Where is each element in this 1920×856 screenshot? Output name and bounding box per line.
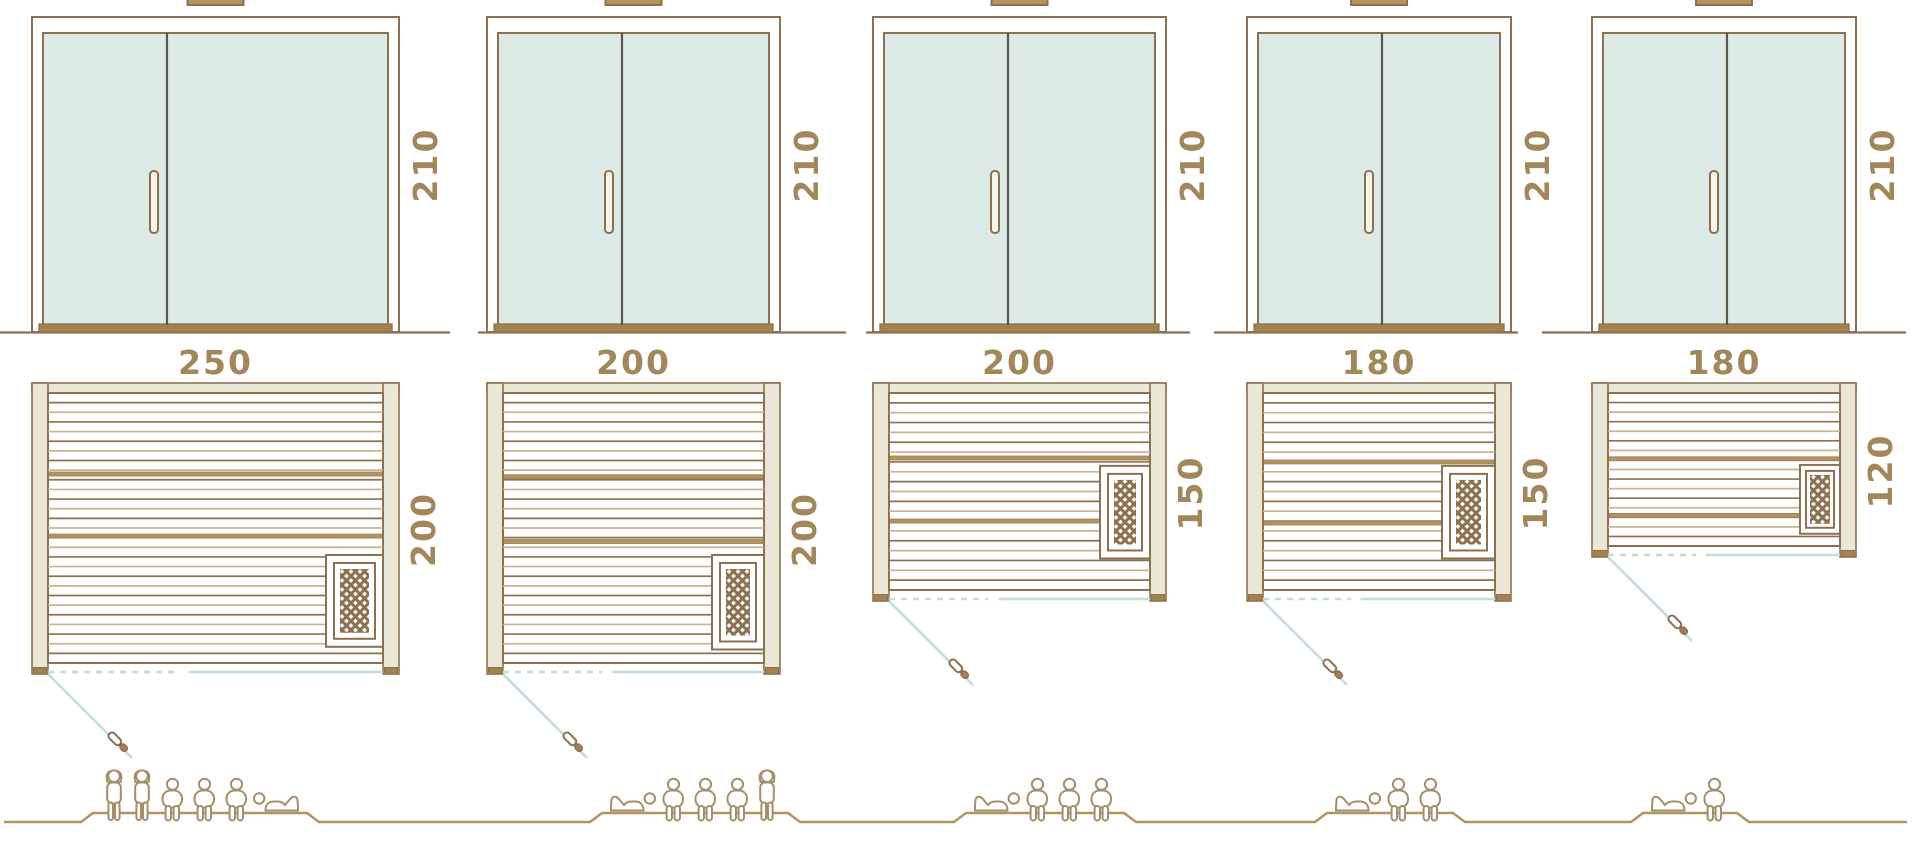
- person-sit-icon: [664, 779, 684, 821]
- person-lie-icon: [1652, 793, 1696, 810]
- heater-stones: [726, 569, 750, 636]
- bench-edge: [1609, 457, 1839, 461]
- plan-right-post-foot: [1842, 551, 1855, 558]
- unit-sauna-250x200: 210250200: [0, 0, 450, 758]
- vent-cap: [606, 0, 662, 5]
- person-sit-icon: [1092, 779, 1112, 821]
- capacity-icons-sauna-180x120: [1652, 779, 1724, 821]
- heater-icon: [1100, 466, 1150, 559]
- plan-depth-label: 200: [404, 492, 443, 567]
- person-sit-icon: [1028, 779, 1048, 821]
- glass-panels: [498, 33, 769, 325]
- plan-back-wall: [32, 383, 399, 393]
- vent-cap: [992, 0, 1048, 5]
- capacity-icons-sauna-200x150: [975, 779, 1111, 821]
- heater-stones: [340, 569, 369, 633]
- door-sill: [39, 324, 392, 332]
- person-lie-icon: [975, 793, 1019, 810]
- door-handle-icon: [150, 171, 158, 233]
- plan-left-post-foot: [1594, 551, 1607, 558]
- unit-sauna-200x150: 210200150: [866, 0, 1212, 685]
- person-sit-icon: [1389, 779, 1409, 821]
- plan-left-post: [1247, 383, 1263, 601]
- person-stand-icon: [760, 770, 775, 820]
- person-sit-icon: [1421, 779, 1441, 821]
- bench-edge: [890, 456, 1149, 460]
- heater-stones: [1810, 475, 1830, 524]
- unit-sauna-180x150: 210180150: [1214, 0, 1557, 685]
- plan-width-label: 250: [178, 343, 253, 382]
- plan-depth-label: 150: [1171, 456, 1210, 531]
- door-handle-marker: [107, 731, 129, 753]
- heater-stones: [1456, 480, 1481, 545]
- plan-depth-label: 120: [1861, 434, 1900, 509]
- people-ground-line: [4, 813, 1907, 822]
- floor-plan: 180120: [1592, 343, 1900, 641]
- door-handle-icon: [991, 171, 999, 233]
- plan-right-post: [764, 383, 780, 674]
- vent-cap: [188, 0, 244, 5]
- plan-left-post: [873, 383, 889, 601]
- diagram-canvas: 2102502002102002002102001502101801502101…: [0, 0, 1920, 856]
- plan-left-post-foot: [875, 595, 888, 602]
- floor-plan: 250200: [32, 343, 443, 758]
- door-handle-marker: [948, 658, 970, 680]
- elevation-height-label: 210: [406, 128, 445, 203]
- bench-edge: [1264, 460, 1494, 464]
- door-sill: [494, 324, 773, 332]
- vent-cap: [1351, 0, 1407, 5]
- floor-plan: 200150: [873, 343, 1210, 685]
- glass-panels: [884, 33, 1155, 325]
- plan-left-post-foot: [1249, 595, 1262, 602]
- plan-right-post: [383, 383, 399, 674]
- door-elevation: 210: [478, 0, 846, 333]
- capacity-icons-sauna-180x150: [1336, 779, 1440, 821]
- heater-icon: [1800, 465, 1840, 534]
- bench-edge: [49, 534, 382, 538]
- person-sit-icon: [1705, 779, 1725, 821]
- plan-width-label: 180: [1342, 343, 1417, 382]
- heater-icon: [712, 555, 764, 650]
- elevation-height-label: 210: [787, 128, 826, 203]
- sauna-comparison-diagram: 2102502002102002002102001502101801502101…: [0, 0, 1920, 856]
- heater-icon: [326, 555, 383, 647]
- person-sit-icon: [227, 779, 247, 821]
- floor-plan: 180150: [1247, 343, 1555, 685]
- floor-plan: 200200: [487, 343, 824, 758]
- plan-right-post: [1495, 383, 1511, 601]
- plan-right-post: [1150, 383, 1166, 601]
- door-elevation: 210: [1214, 0, 1557, 333]
- plan-right-post-foot: [1497, 595, 1510, 602]
- plan-back-wall: [1592, 383, 1856, 393]
- plan-left-post-foot: [34, 668, 47, 675]
- bench-edge: [504, 540, 763, 544]
- plan-depth-label: 150: [1516, 456, 1555, 531]
- plan-left-post: [487, 383, 503, 674]
- plan-left-post-foot: [489, 668, 502, 675]
- bench-edge: [504, 475, 763, 479]
- person-stand-icon: [107, 770, 122, 820]
- door-sill: [1254, 324, 1504, 332]
- door-handle-icon: [605, 171, 613, 233]
- person-sit-icon: [195, 779, 215, 821]
- plan-right-post-foot: [385, 668, 398, 675]
- door-handle-marker: [1322, 658, 1344, 680]
- door-handle-icon: [1365, 171, 1373, 233]
- door-handle-marker: [1667, 614, 1689, 636]
- door-sill: [880, 324, 1159, 332]
- person-sit-icon: [696, 779, 716, 821]
- person-sit-icon: [163, 779, 183, 821]
- door-handle-icon: [1710, 171, 1718, 233]
- plan-width-label: 200: [982, 343, 1057, 382]
- plan-left-post: [32, 383, 48, 674]
- person-sit-icon: [728, 779, 748, 821]
- plan-back-wall: [487, 383, 780, 393]
- person-lie-icon: [254, 793, 298, 810]
- person-lie-icon: [1336, 793, 1380, 810]
- door-elevation: 210: [866, 0, 1212, 333]
- heater-icon: [1442, 466, 1495, 559]
- plan-right-post: [1840, 383, 1856, 557]
- heater-stones: [1114, 480, 1136, 545]
- glass-panels: [1258, 33, 1500, 325]
- unit-sauna-180x120: 210180120: [1542, 0, 1906, 641]
- person-stand-icon: [135, 770, 150, 820]
- door-handle-marker: [562, 731, 584, 753]
- plan-back-wall: [1247, 383, 1511, 393]
- glass-panels: [43, 33, 388, 325]
- door-sill: [1599, 324, 1849, 332]
- plan-width-label: 180: [1687, 343, 1762, 382]
- door-elevation: 210: [0, 0, 450, 333]
- elevation-height-label: 210: [1518, 128, 1557, 203]
- person-sit-icon: [1060, 779, 1080, 821]
- vent-cap: [1696, 0, 1752, 5]
- plan-back-wall: [873, 383, 1166, 393]
- plan-right-post-foot: [766, 668, 779, 675]
- door-elevation: 210: [1542, 0, 1906, 333]
- bench-edge: [49, 472, 382, 476]
- plan-right-post-foot: [1152, 595, 1165, 602]
- glass-panels: [1603, 33, 1845, 325]
- plan-depth-label: 200: [785, 492, 824, 567]
- elevation-height-label: 210: [1173, 128, 1212, 203]
- plan-left-post: [1592, 383, 1608, 557]
- plan-width-label: 200: [596, 343, 671, 382]
- unit-sauna-200x200: 210200200: [478, 0, 846, 758]
- elevation-height-label: 210: [1863, 128, 1902, 203]
- person-lie-icon: [611, 793, 655, 810]
